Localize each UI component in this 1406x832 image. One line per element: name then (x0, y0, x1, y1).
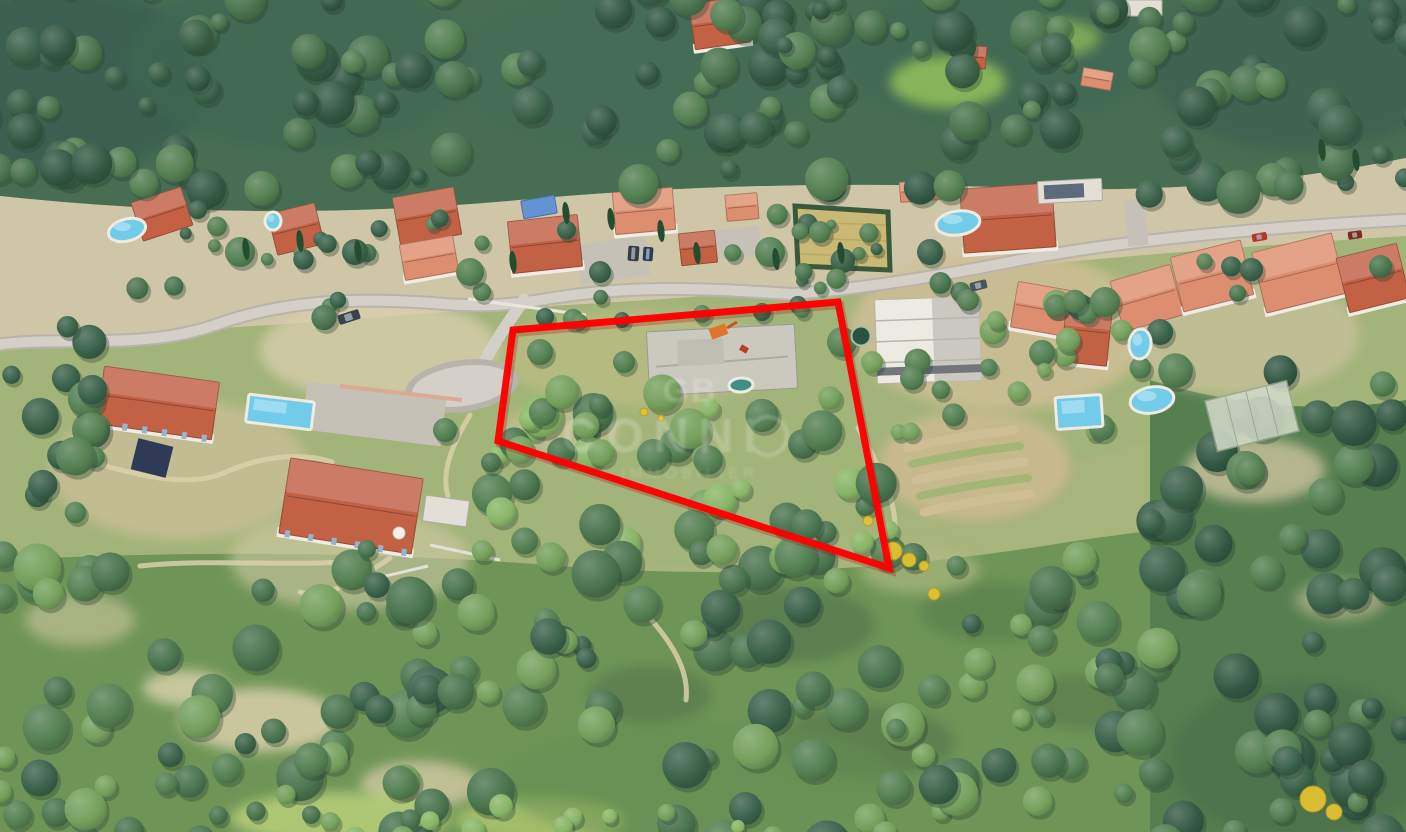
patio-parasol (393, 527, 405, 539)
watermark-subtitle: IMMOBILIER (621, 465, 759, 482)
water-tank (852, 327, 871, 346)
pool-highlight (114, 222, 131, 231)
pool-highlight (943, 215, 963, 225)
car (627, 246, 639, 262)
watermark-monogram: GB (663, 372, 718, 410)
pool-highlight (267, 215, 274, 222)
flowering-bush (919, 561, 929, 571)
flowering-bush (863, 516, 873, 526)
car-windshield (1256, 234, 1262, 240)
aerial-photo-stage: GB CONNI IMMOBILIER (0, 0, 1406, 832)
car (643, 247, 654, 262)
watermark-title: CONNI (562, 410, 767, 463)
pool-highlight (1137, 391, 1157, 401)
flowering-bush (1326, 804, 1342, 820)
swimming-pool (729, 377, 754, 393)
flowering-bush (1300, 786, 1326, 812)
flowering-bush (928, 588, 940, 600)
pool-highlight (1132, 334, 1142, 346)
car-windshield (1352, 232, 1358, 238)
aerial-photo: GB CONNI IMMOBILIER (0, 0, 1406, 832)
flowering-bush (902, 553, 916, 567)
pool-highlight (1061, 400, 1085, 414)
